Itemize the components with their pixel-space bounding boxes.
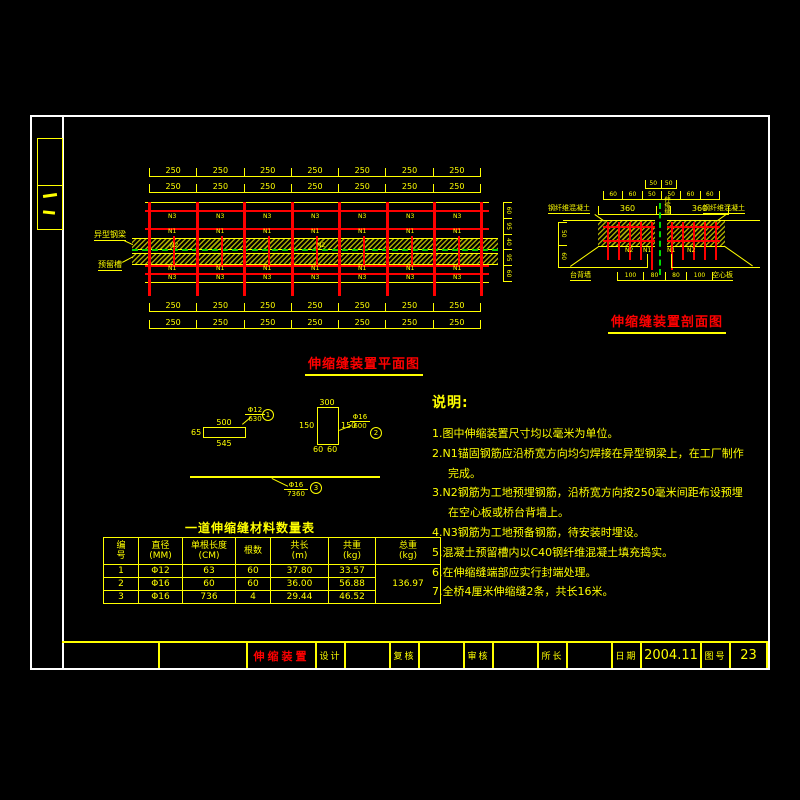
table-cell: 736 bbox=[183, 591, 236, 604]
rebar-tag-label: N1 bbox=[453, 266, 461, 272]
dim-label: 250 bbox=[197, 167, 243, 175]
dim-label: 360 bbox=[599, 205, 656, 213]
rebar-tag-label: N3 bbox=[216, 275, 224, 281]
section-dim-gap: 5050 bbox=[645, 180, 677, 189]
dim-label: 50 bbox=[560, 223, 566, 245]
dim-label: 50 bbox=[643, 192, 661, 198]
section-rebar-bar bbox=[651, 222, 653, 270]
table-cell: Φ16 bbox=[139, 578, 183, 591]
dim-label: 100 bbox=[687, 273, 712, 279]
plan-rebar-bar bbox=[291, 202, 294, 296]
dim-label: 250 bbox=[434, 302, 480, 310]
dim-segment: 60 bbox=[503, 265, 512, 282]
table-cell: 37.80 bbox=[271, 565, 329, 578]
table-header-line: 单根长度 bbox=[185, 541, 233, 551]
dim-label: 40 bbox=[505, 235, 511, 250]
dim-label: 60 bbox=[560, 246, 566, 268]
rebar-tag-label: N1 bbox=[263, 229, 271, 235]
dim-label: 60 bbox=[701, 192, 719, 198]
review-label: 审核 bbox=[465, 643, 494, 668]
rebar-tag-label: N1 bbox=[453, 229, 461, 235]
rebar-tag-label: N2 bbox=[687, 248, 695, 254]
dim-segment: 250 bbox=[291, 303, 338, 312]
dim-label: 80 bbox=[644, 273, 665, 279]
sheet-number-label: 图号 bbox=[702, 643, 731, 668]
rebar-tag-label: N3 bbox=[358, 275, 366, 281]
plan-rebar-tick bbox=[268, 236, 270, 266]
rebar-tag-label: N1 bbox=[406, 229, 414, 235]
table-header-line: 根数 bbox=[238, 546, 268, 556]
table-header-line: (kg) bbox=[331, 551, 373, 561]
table-cell: Φ12 bbox=[139, 565, 183, 578]
dim-label: 250 bbox=[150, 167, 196, 175]
table-header-line: 共长 bbox=[273, 541, 326, 551]
table-header-line: 共重 bbox=[331, 541, 373, 551]
plan-rebar-tick bbox=[173, 236, 175, 266]
director-label: 所长 bbox=[539, 643, 568, 668]
rebar-tag-label: N3 bbox=[263, 275, 271, 281]
rebar-shape-n1 bbox=[203, 427, 246, 438]
detail2-bar-size: Φ16 bbox=[353, 413, 367, 421]
dim-segment: 60 bbox=[700, 191, 720, 200]
dim-segment: 250 bbox=[338, 320, 385, 329]
dim-segment: 250 bbox=[244, 168, 291, 177]
dim-label: 80 bbox=[666, 273, 686, 279]
check-label: 复核 bbox=[391, 643, 420, 668]
dim-segment: 250 bbox=[385, 320, 432, 329]
section-label-joint: 伸缩缝 bbox=[663, 196, 669, 214]
table-cell: 36.00 bbox=[271, 578, 329, 591]
table-header-line: 总重 bbox=[378, 541, 438, 551]
dim-segment: 250 bbox=[196, 303, 243, 312]
dim-label: 250 bbox=[434, 183, 480, 191]
plan-view-title: 伸缩缝装置平面图 bbox=[305, 353, 423, 376]
detail2-dim-left: 150 bbox=[299, 422, 314, 430]
plan-dim-chain-top2: 250250250250250250250 bbox=[149, 184, 481, 193]
table-cell: 29.44 bbox=[271, 591, 329, 604]
signature-mark bbox=[43, 210, 55, 214]
table-cell: 1 bbox=[104, 565, 139, 578]
dim-segment: 250 bbox=[385, 303, 432, 312]
detail1-dim-top: 500 bbox=[207, 419, 241, 427]
dim-label: 250 bbox=[292, 319, 338, 327]
rebar-tag-label: N1 bbox=[311, 266, 319, 272]
dim-label: 250 bbox=[197, 302, 243, 310]
dim-label: 250 bbox=[150, 319, 196, 327]
section-label-hollow-slab: 空心板 bbox=[712, 272, 733, 281]
notes-title: 说明: bbox=[432, 392, 746, 412]
signature-box bbox=[37, 138, 63, 230]
dim-segment: 50 bbox=[558, 222, 567, 245]
deck-surface-line bbox=[724, 220, 760, 221]
plan-dim-chain-right: 6095409560 bbox=[503, 202, 512, 282]
dim-label: 250 bbox=[292, 167, 338, 175]
dim-label: 60 bbox=[623, 192, 641, 198]
dim-segment: 60 bbox=[680, 191, 699, 200]
dim-label: 50 bbox=[646, 181, 661, 187]
date-label: 日期 bbox=[613, 643, 642, 668]
dim-label: 250 bbox=[150, 183, 196, 191]
dim-segment: 250 bbox=[291, 184, 338, 193]
dim-label: 100 bbox=[618, 273, 643, 279]
rebar-tag-label: N2 bbox=[170, 243, 178, 249]
dim-label: 60 bbox=[604, 192, 622, 198]
dim-segment: 250 bbox=[433, 168, 481, 177]
table-cell: 4 bbox=[236, 591, 271, 604]
table-header-row: 编号直径(MM)单根长度(CM)根数共长(m)共重(kg)总重(kg) bbox=[104, 538, 441, 565]
detail2-dim-bottom1: 60 bbox=[313, 446, 323, 454]
dim-label: 250 bbox=[386, 183, 432, 191]
plan-rebar-tick bbox=[316, 236, 318, 266]
blockout-edge bbox=[671, 254, 672, 268]
rebar-tag-1: 1 bbox=[262, 409, 274, 421]
dim-label: 250 bbox=[245, 319, 291, 327]
plan-label-steel-beam: 异型钢梁 bbox=[94, 231, 126, 241]
note-item: 6.在伸缩缝端部应实行封端处理。 bbox=[432, 563, 746, 583]
table-header-line: 号 bbox=[106, 551, 136, 561]
dim-label: 250 bbox=[245, 302, 291, 310]
table-header-line: (CM) bbox=[185, 551, 233, 561]
dim-label: 250 bbox=[386, 319, 432, 327]
dim-label: 250 bbox=[339, 183, 385, 191]
rebar-tag-label: N3 bbox=[263, 214, 271, 220]
table-header-cell: 共长(m) bbox=[271, 538, 329, 565]
plan-rebar-bar bbox=[386, 202, 389, 296]
table-cell: 2 bbox=[104, 578, 139, 591]
table-cell: 56.88 bbox=[329, 578, 376, 591]
table-header-cell: 直径(MM) bbox=[139, 538, 183, 565]
dim-segment: 250 bbox=[291, 320, 338, 329]
table-header-line: 直径 bbox=[141, 541, 180, 551]
plan-rebar-tick bbox=[411, 236, 413, 266]
section-rebar-bar bbox=[682, 222, 684, 260]
dim-segment: 250 bbox=[196, 184, 243, 193]
note-item: 3.N2钢筋为工地预埋钢筋，沿桥宽方向按250毫米间距布设预埋在空心板或桥台背墙… bbox=[432, 483, 746, 523]
dim-label: 250 bbox=[150, 302, 196, 310]
rebar-tag-3: 3 bbox=[310, 482, 322, 494]
material-table-title: 一道伸缩缝材料数量表 bbox=[150, 519, 350, 536]
slab-soffit-line bbox=[672, 267, 760, 268]
rebar-tag-label: N3 bbox=[311, 275, 319, 281]
detail1-dim-left: 65 bbox=[191, 429, 201, 437]
dim-segment: 250 bbox=[338, 303, 385, 312]
dim-segment: 60 bbox=[503, 202, 512, 218]
section-rebar-bar bbox=[693, 222, 695, 260]
dim-segment: 95 bbox=[503, 249, 512, 265]
rebar-tag-label: N1 bbox=[643, 248, 651, 254]
table-header-cell: 编号 bbox=[104, 538, 139, 565]
material-table: 编号直径(MM)单根长度(CM)根数共长(m)共重(kg)总重(kg)1Φ126… bbox=[103, 537, 441, 604]
rebar-tag-label: N1 bbox=[168, 229, 176, 235]
design-signature-cell bbox=[346, 643, 391, 668]
dim-segment: 50 bbox=[642, 191, 661, 200]
detail3-bar-length: 7360 bbox=[284, 489, 308, 498]
signature-mark bbox=[43, 193, 57, 198]
section-rebar-bar bbox=[607, 222, 609, 260]
note-item: 2.N1锚固钢筋应沿桥宽方向均匀焊接在异型钢梁上，在工厂制作完成。 bbox=[432, 444, 746, 484]
table-total-cell: 136.97 bbox=[376, 565, 441, 604]
table-row: 1Φ12636037.8033.57136.97 bbox=[104, 565, 441, 578]
plan-label-slot: 预留槽 bbox=[98, 261, 122, 271]
note-item: 5.混凝土预留槽内以C40钢纤维混凝土填充捣实。 bbox=[432, 543, 746, 563]
titlebar-empty-cell bbox=[160, 643, 248, 668]
rebar-tag-label: N3 bbox=[406, 275, 414, 281]
dim-label: 250 bbox=[197, 183, 243, 191]
rebar-tag-label: N1 bbox=[358, 229, 366, 235]
detail2-dim-bottom2: 60 bbox=[327, 446, 337, 454]
dim-segment: 50 bbox=[661, 180, 678, 189]
detail2-dim-top: 300 bbox=[317, 399, 337, 407]
section-dim-top: 606050506060 bbox=[603, 191, 720, 200]
rebar-tag-label: N3 bbox=[168, 214, 176, 220]
dim-segment: 250 bbox=[244, 303, 291, 312]
rebar-tag-label: N3 bbox=[311, 214, 319, 220]
section-rebar-bar bbox=[704, 222, 706, 260]
dim-label: 250 bbox=[339, 167, 385, 175]
dim-label: 250 bbox=[245, 183, 291, 191]
table-cell: 33.57 bbox=[329, 565, 376, 578]
table-cell: Φ16 bbox=[139, 591, 183, 604]
table-cell: 46.52 bbox=[329, 591, 376, 604]
rebar-tag-label: N3 bbox=[168, 275, 176, 281]
dim-segment: 250 bbox=[433, 303, 481, 312]
dim-label: 250 bbox=[197, 319, 243, 327]
dim-segment: 250 bbox=[385, 168, 432, 177]
slab-soffit-line bbox=[560, 267, 648, 268]
rebar-tag-label: N1 bbox=[263, 266, 271, 272]
date-value: 2004.11 bbox=[642, 643, 702, 668]
dim-label: 250 bbox=[434, 319, 480, 327]
titlebar-empty-cell bbox=[62, 643, 160, 668]
table-header-cell: 单根长度(CM) bbox=[183, 538, 236, 565]
rebar-tag-label: N3 bbox=[216, 214, 224, 220]
dim-segment: 250 bbox=[291, 168, 338, 177]
dim-segment: 100 bbox=[617, 272, 643, 281]
dim-segment: 60 bbox=[603, 191, 622, 200]
section-view-title: 伸缩缝装置剖面图 bbox=[608, 311, 726, 334]
table-header-cell: 共重(kg) bbox=[329, 538, 376, 565]
dim-label: 250 bbox=[339, 319, 385, 327]
dim-label: 95 bbox=[505, 219, 511, 234]
detail1-bar-size: Φ12 bbox=[248, 406, 262, 414]
dim-segment: 250 bbox=[433, 184, 481, 193]
table-cell: 60 bbox=[236, 578, 271, 591]
plan-dim-chain-bottom1: 250250250250250250250 bbox=[149, 303, 481, 312]
director-signature-cell bbox=[568, 643, 613, 668]
detail1-dim-bottom: 545 bbox=[207, 440, 241, 448]
dim-segment: 50 bbox=[645, 180, 661, 189]
section-dim-left: 5060 bbox=[558, 222, 567, 268]
table-header-line: (m) bbox=[273, 551, 326, 561]
notes-block: 说明: 1.图中伸缩装置尺寸均以毫米为单位。2.N1锚固钢筋应沿桥宽方向均匀焊接… bbox=[432, 392, 746, 602]
plan-rebar-bar bbox=[243, 202, 246, 296]
dim-label: 250 bbox=[386, 302, 432, 310]
dim-segment: 60 bbox=[622, 191, 641, 200]
rebar-tag-label: N1 bbox=[216, 229, 224, 235]
note-item: 4.N3钢筋为工地预备钢筋，待安装时埋设。 bbox=[432, 523, 746, 543]
rebar-tag-label: N1 bbox=[216, 266, 224, 272]
dim-label: 250 bbox=[292, 302, 338, 310]
section-rebar-bar bbox=[640, 222, 642, 260]
note-item: 7.全桥4厘米伸缩缝2条，共长16米。 bbox=[432, 582, 746, 602]
sheet-number-value: 23 bbox=[731, 643, 768, 668]
rebar-tag-label: N1 bbox=[311, 229, 319, 235]
rebar-tag-label: N1 bbox=[358, 266, 366, 272]
table-cell: 3 bbox=[104, 591, 139, 604]
rebar-tag-label: N3 bbox=[453, 275, 461, 281]
dim-segment: 360 bbox=[598, 206, 656, 215]
deck-surface-line bbox=[563, 220, 599, 221]
dim-segment: 80 bbox=[665, 272, 686, 281]
table-cell: 60 bbox=[183, 578, 236, 591]
section-rebar-bar bbox=[629, 222, 631, 260]
plan-dim-chain-top1: 250250250250250250250 bbox=[149, 168, 481, 177]
dim-segment: 60 bbox=[558, 245, 567, 269]
table-header-line: (MM) bbox=[141, 551, 180, 561]
dim-segment: 40 bbox=[503, 234, 512, 250]
table-header-line: (kg) bbox=[378, 551, 438, 561]
rebar-tag-label: N3 bbox=[453, 214, 461, 220]
plan-rebar-tick bbox=[458, 236, 460, 266]
dim-label: 250 bbox=[434, 167, 480, 175]
dim-label: 60 bbox=[505, 266, 511, 281]
rebar-tag-label: N1 bbox=[168, 266, 176, 272]
dim-segment: 250 bbox=[338, 184, 385, 193]
plan-rebar-bar bbox=[480, 202, 483, 296]
detail2-callout: Φ16 600 bbox=[350, 413, 370, 431]
dim-segment: 250 bbox=[149, 184, 196, 193]
section-rebar-bar bbox=[715, 222, 717, 260]
design-label: 设计 bbox=[317, 643, 346, 668]
drawing-name: 伸缩装置 bbox=[248, 643, 317, 668]
rebar-shape-n2 bbox=[317, 407, 339, 445]
rebar-shape-n3 bbox=[190, 476, 380, 478]
table-cell: 63 bbox=[183, 565, 236, 578]
detail3-bar-size: Φ16 bbox=[289, 481, 303, 489]
dim-segment: 250 bbox=[385, 184, 432, 193]
plan-rebar-bar bbox=[196, 202, 199, 296]
dim-segment: 250 bbox=[149, 168, 196, 177]
detail2-bar-length: 600 bbox=[350, 421, 370, 430]
dim-segment: 250 bbox=[244, 320, 291, 329]
plan-joint-centerline bbox=[132, 249, 498, 251]
dim-segment: 250 bbox=[338, 168, 385, 177]
dim-label: 250 bbox=[292, 183, 338, 191]
table-header-line: 编 bbox=[106, 541, 136, 551]
dim-label: 95 bbox=[505, 250, 511, 265]
dim-label: 60 bbox=[681, 192, 699, 198]
signature-box-divider bbox=[38, 185, 62, 186]
rebar-tag-2: 2 bbox=[370, 427, 382, 439]
plan-rebar-bar bbox=[433, 202, 436, 296]
section-dim-bottom: 1008080100 bbox=[617, 272, 708, 281]
notes-list: 1.图中伸缩装置尺寸均以毫米为单位。2.N1锚固钢筋应沿桥宽方向均匀焊接在异型钢… bbox=[432, 424, 746, 602]
review-signature-cell bbox=[494, 643, 539, 668]
plan-dim-chain-bottom2: 250250250250250250250 bbox=[149, 320, 481, 329]
rebar-tag-label: N1 bbox=[406, 266, 414, 272]
note-item: 1.图中伸缩装置尺寸均以毫米为单位。 bbox=[432, 424, 746, 444]
dim-segment: 250 bbox=[244, 184, 291, 193]
table-cell: 60 bbox=[236, 565, 271, 578]
plan-rebar-bar bbox=[148, 202, 151, 296]
plan-rebar-tick bbox=[221, 236, 223, 266]
rebar-tag-label: N3 bbox=[358, 214, 366, 220]
blockout-edge bbox=[647, 254, 648, 268]
detail3-callout: Φ16 7360 bbox=[284, 481, 308, 499]
check-signature-cell bbox=[420, 643, 465, 668]
section-label-abutment: 台背墙 bbox=[570, 272, 591, 281]
rebar-tag-label: N2 bbox=[625, 248, 633, 254]
plan-concrete-hatch-lower bbox=[132, 253, 498, 265]
rebar-tag-label: N1 bbox=[667, 248, 675, 254]
section-joint-centerline bbox=[659, 203, 661, 275]
section-label-fiber-concrete-left: 钢纤维混凝土 bbox=[548, 205, 590, 214]
dim-segment: 250 bbox=[196, 320, 243, 329]
section-label-fiber-concrete-right: 钢纤维混凝土 bbox=[703, 205, 745, 214]
dim-segment: 250 bbox=[196, 168, 243, 177]
section-rebar-bar bbox=[618, 222, 620, 260]
dim-segment: 95 bbox=[503, 218, 512, 234]
rebar-tag-label: N2 bbox=[317, 243, 325, 249]
dim-label: 60 bbox=[505, 203, 511, 218]
table-header-cell: 总重(kg) bbox=[376, 538, 441, 565]
cad-drawing-sheet: 250250250250250250250 250250250250250250… bbox=[0, 0, 800, 800]
dim-segment: 250 bbox=[149, 320, 196, 329]
plan-rebar-bar bbox=[338, 202, 341, 296]
title-bar: 伸缩装置 设计 复核 审核 所长 日期 2004.11 图号 23 bbox=[62, 641, 768, 668]
dim-segment: 250 bbox=[149, 303, 196, 312]
rebar-tag-label: N3 bbox=[406, 214, 414, 220]
dim-label: 250 bbox=[245, 167, 291, 175]
dim-label: 50 bbox=[662, 181, 677, 187]
dim-label: 250 bbox=[339, 302, 385, 310]
dim-segment: 100 bbox=[686, 272, 713, 281]
plan-rebar-tick bbox=[363, 236, 365, 266]
dim-segment: 80 bbox=[643, 272, 665, 281]
dim-segment: 250 bbox=[433, 320, 481, 329]
table-header-cell: 根数 bbox=[236, 538, 271, 565]
dim-label: 250 bbox=[386, 167, 432, 175]
